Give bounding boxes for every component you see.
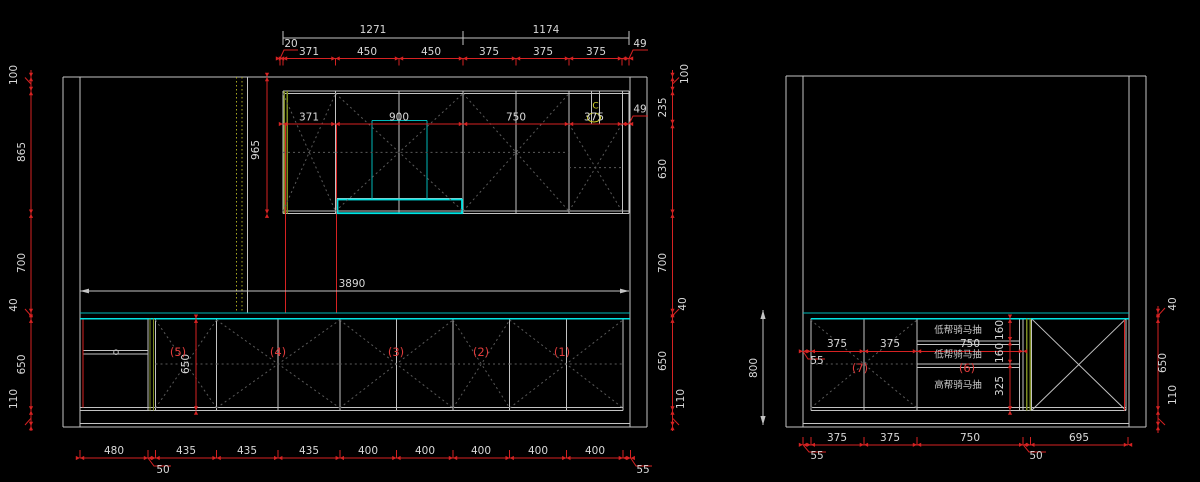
drawer-label: 高帮骑马抽 xyxy=(934,379,982,391)
dim-label: 49 xyxy=(633,38,646,50)
drawer-label: 低帮骑马抽 xyxy=(934,349,982,361)
section-label: (2) xyxy=(473,345,489,359)
dim-label: 375 xyxy=(880,432,900,444)
dim-label: 450 xyxy=(357,46,377,58)
dim-label: 20 xyxy=(284,38,297,50)
dim-label: 40 xyxy=(8,298,20,311)
dim-label: 900 xyxy=(389,112,409,124)
dim-label: 480 xyxy=(104,445,124,457)
dim-label: 750 xyxy=(506,112,526,124)
dim-label: 40 xyxy=(677,297,689,310)
dim-label: 400 xyxy=(471,445,491,457)
right-countertop xyxy=(803,313,1129,319)
left-highlight-red-lines xyxy=(83,124,337,408)
dim-label: 375 xyxy=(586,46,606,58)
section-label: (5) xyxy=(170,345,186,359)
dim-label: 375 xyxy=(827,432,847,444)
dim-label: 50 xyxy=(156,464,169,476)
dim-label: 110 xyxy=(675,389,687,409)
dim-label: 375 xyxy=(880,338,900,350)
dim-label: 965 xyxy=(250,140,262,160)
section-label: (6) xyxy=(959,361,975,375)
dim-label: 435 xyxy=(237,445,257,457)
dim-label: 110 xyxy=(1167,385,1179,405)
dim-label: 55 xyxy=(636,464,649,476)
dim-label: 375 xyxy=(479,46,499,58)
left-countertop xyxy=(80,313,630,319)
section-label: (1) xyxy=(554,345,570,359)
dim-label: 400 xyxy=(585,445,605,457)
dim-label: 371 xyxy=(299,112,319,124)
dim-label: 50 xyxy=(1029,450,1042,462)
dim-label: 400 xyxy=(528,445,548,457)
dim-label: 400 xyxy=(358,445,378,457)
dim-label: 40 xyxy=(1167,297,1179,310)
left-white-dims xyxy=(80,31,629,293)
dim-label: 3890 xyxy=(339,278,366,290)
dim-label: 630 xyxy=(657,159,669,179)
dim-label: 435 xyxy=(176,445,196,457)
cad-svg: 1271117420371450450375375375493719007503… xyxy=(0,0,1200,482)
left-elevation-walls xyxy=(63,77,647,427)
dim-label: 375 xyxy=(827,338,847,350)
dim-label: 750 xyxy=(960,338,980,350)
olive-panels-right xyxy=(1027,319,1031,411)
hidden-duct-lines xyxy=(237,77,243,313)
dim-label: C xyxy=(592,102,598,112)
dim-label: 435 xyxy=(299,445,319,457)
dim-label: 375 xyxy=(533,46,553,58)
dim-label: 55 xyxy=(810,450,823,462)
section-label: (3) xyxy=(388,345,404,359)
dim-label: 650 xyxy=(16,354,28,374)
dim-label: 49 xyxy=(633,104,646,116)
dim-label: 100 xyxy=(679,64,691,84)
dim-label: 325 xyxy=(994,376,1006,396)
cad-drawing-canvas: 1271117420371450450375375375493719007503… xyxy=(0,0,1200,482)
dim-label: 650 xyxy=(1157,353,1169,373)
drawer-label: 低帮骑马抽 xyxy=(934,324,982,336)
dim-label: 400 xyxy=(415,445,435,457)
range-hood xyxy=(338,121,463,214)
dimension-labels: 1271117420371450450375375375493719007503… xyxy=(8,24,1179,476)
dim-label: 700 xyxy=(657,253,669,273)
section-label: (7) xyxy=(852,361,868,375)
dim-label: 750 xyxy=(960,432,980,444)
section-label: (4) xyxy=(270,345,286,359)
dim-label: 160 xyxy=(994,343,1006,363)
dim-label: 160 xyxy=(994,320,1006,340)
dim-label: 235 xyxy=(657,97,669,117)
dim-label: 100 xyxy=(8,65,20,85)
dim-label: 800 xyxy=(748,358,760,378)
dim-label: 375 xyxy=(584,112,604,124)
dim-label: 1271 xyxy=(360,24,387,36)
dim-label: 650 xyxy=(657,351,669,371)
right-white-dims xyxy=(760,310,765,425)
dim-label: 1174 xyxy=(533,24,560,36)
dim-label: 700 xyxy=(16,253,28,273)
dim-label: 110 xyxy=(8,389,20,409)
dim-label: 865 xyxy=(16,142,28,162)
dim-label: 695 xyxy=(1069,432,1089,444)
dim-label: 55 xyxy=(810,355,823,367)
dim-label: 450 xyxy=(421,46,441,58)
dim-label: 371 xyxy=(299,46,319,58)
open-bay-cross xyxy=(1032,319,1127,411)
left-base-cabinets xyxy=(80,319,623,411)
